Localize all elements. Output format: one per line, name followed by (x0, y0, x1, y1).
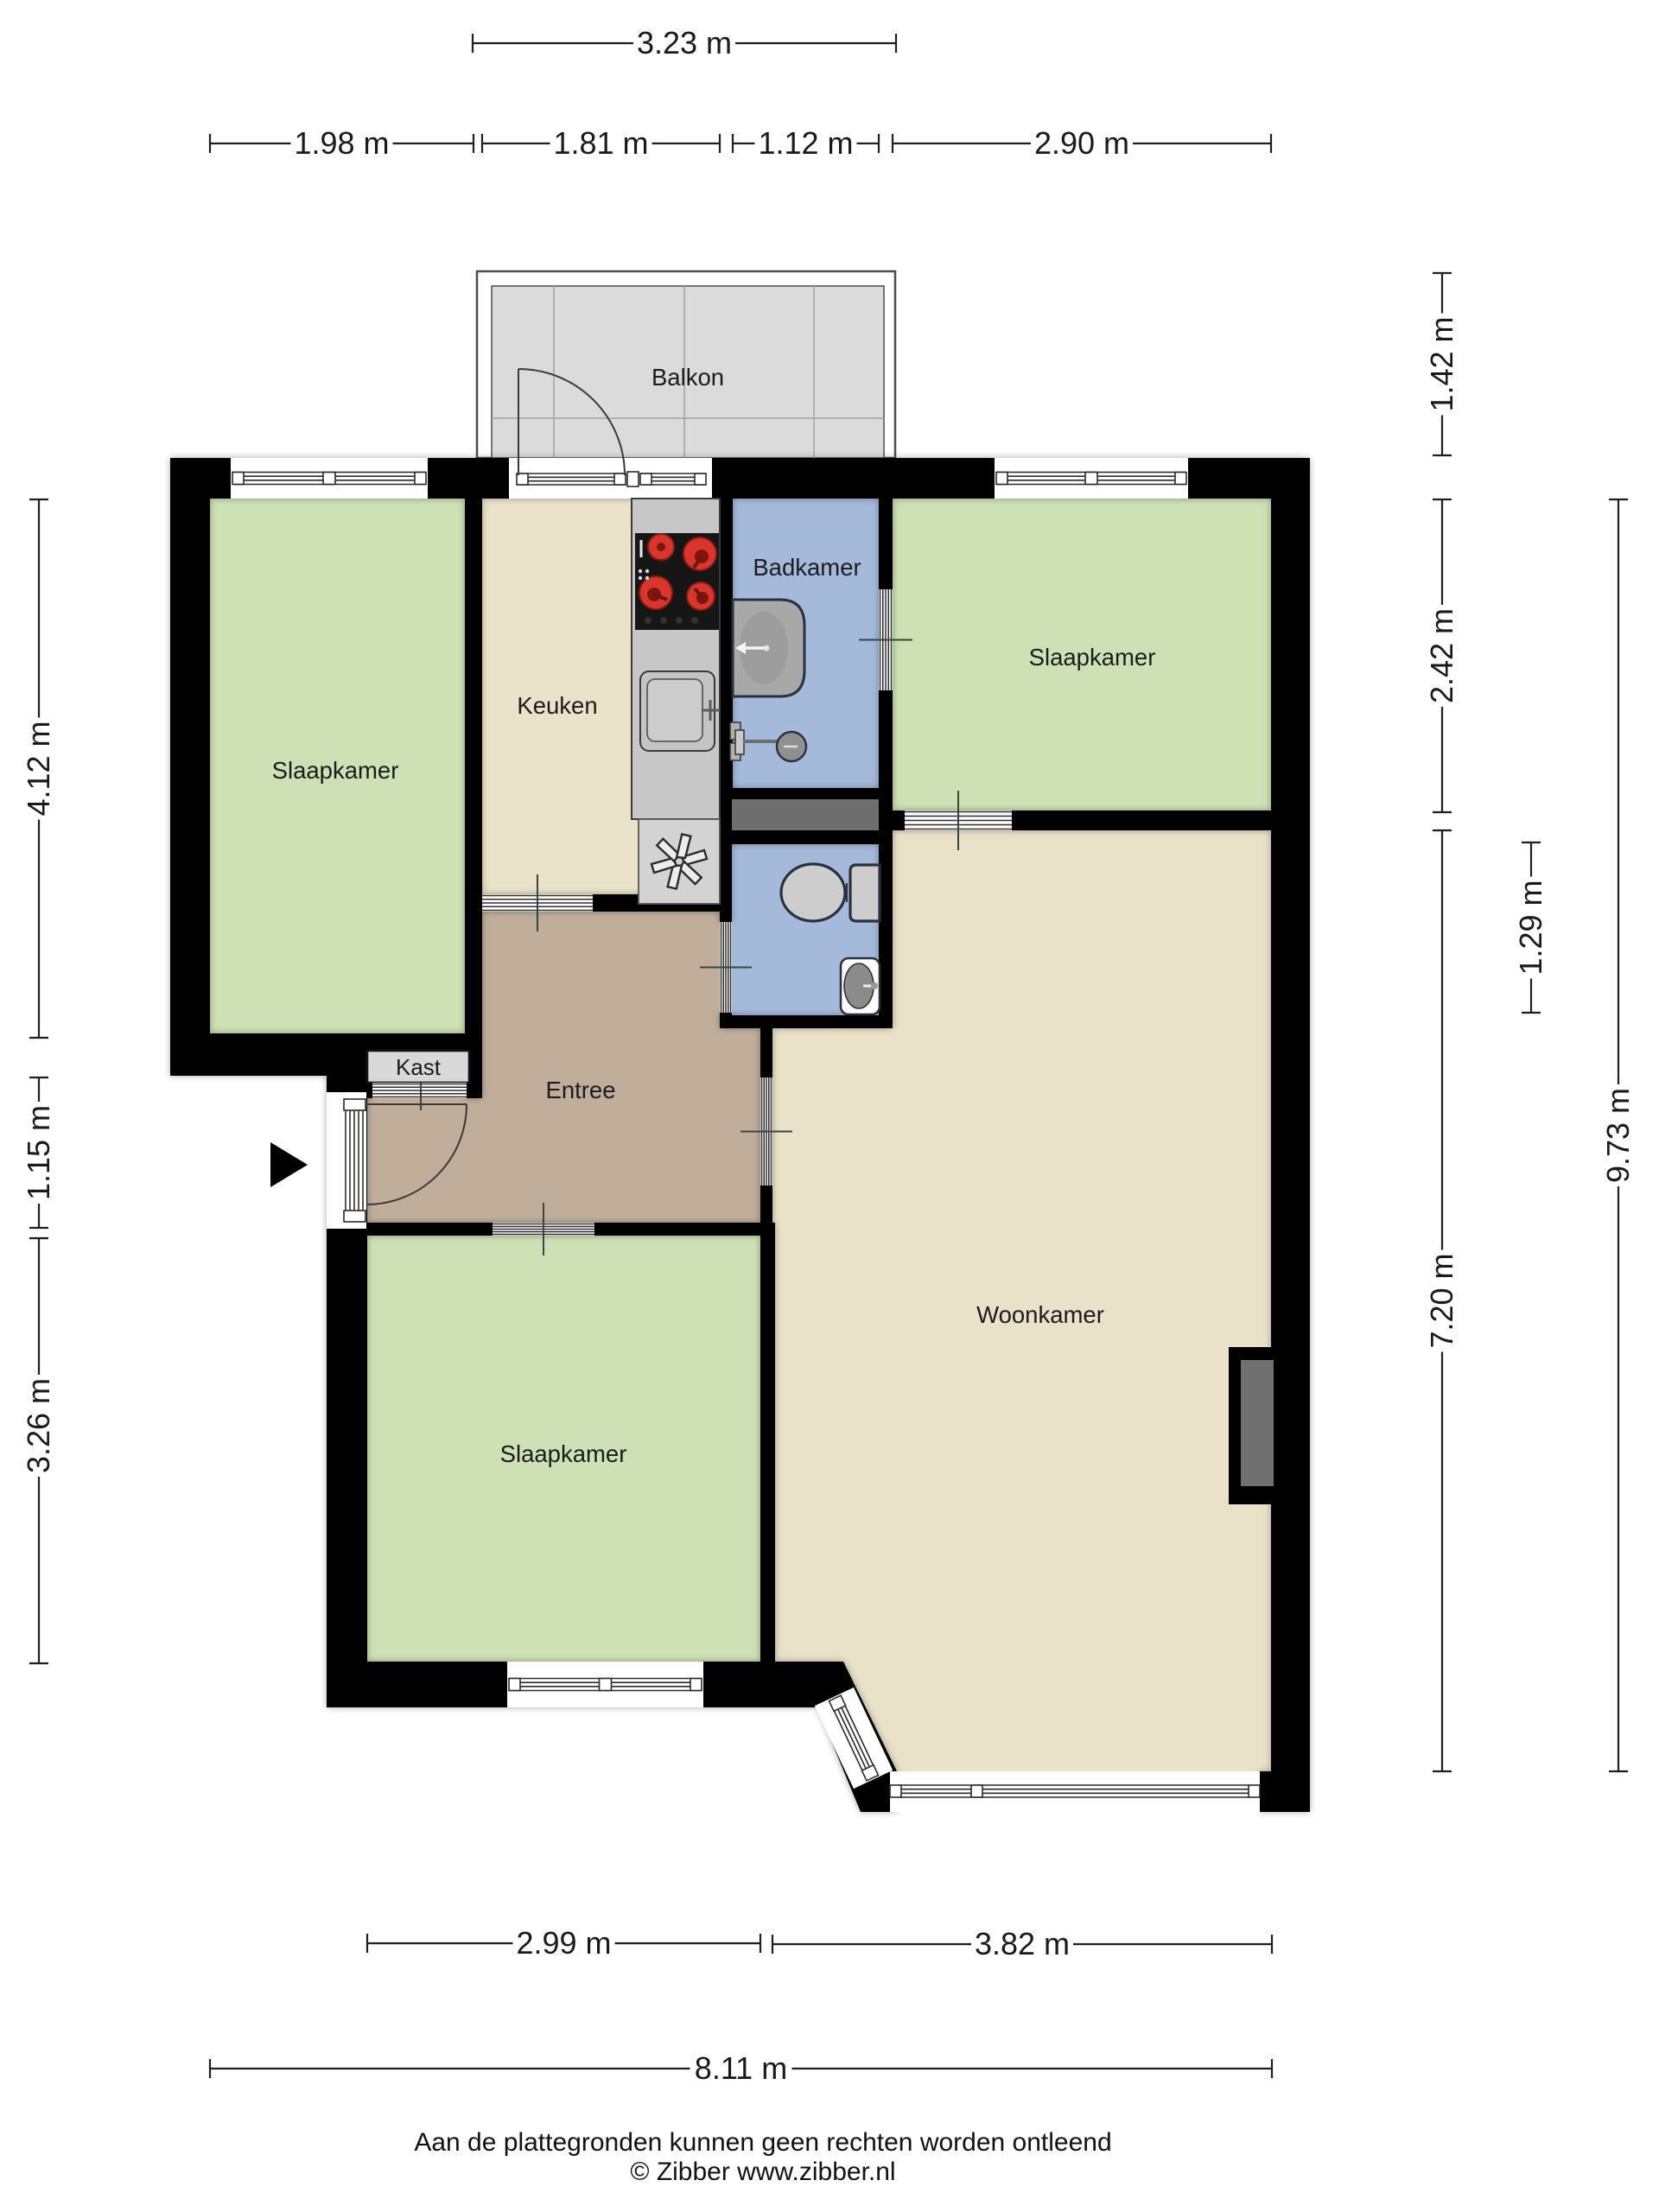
svg-text:3.26 m: 3.26 m (21, 1378, 56, 1473)
svg-text:Slaapkamer: Slaapkamer (272, 757, 399, 784)
svg-text:Badkamer: Badkamer (753, 554, 861, 581)
svg-text:Slaapkamer: Slaapkamer (1029, 644, 1156, 671)
svg-text:1.42 m: 1.42 m (1424, 316, 1459, 411)
svg-text:Kast: Kast (396, 1054, 442, 1080)
svg-text:Aan de plattegronden kunnen ge: Aan de plattegronden kunnen geen rechten… (414, 2128, 1111, 2157)
svg-text:Slaapkamer: Slaapkamer (500, 1440, 627, 1467)
svg-text:2.42 m: 2.42 m (1424, 608, 1459, 703)
svg-text:Entree: Entree (545, 1077, 615, 1103)
svg-text:8.11 m: 8.11 m (695, 2050, 787, 2086)
svg-text:2.99 m: 2.99 m (516, 1925, 611, 1961)
svg-text:Woonkamer: Woonkamer (976, 1301, 1104, 1328)
svg-text:3.82 m: 3.82 m (975, 1926, 1070, 1961)
svg-text:1.98 m: 1.98 m (294, 125, 389, 161)
svg-text:3.23 m: 3.23 m (637, 25, 732, 60)
svg-text:4.12 m: 4.12 m (21, 721, 56, 816)
svg-text:Keuken: Keuken (517, 692, 597, 719)
svg-text:1.81 m: 1.81 m (553, 125, 648, 161)
svg-text:1.15 m: 1.15 m (21, 1105, 56, 1200)
svg-text:2.90 m: 2.90 m (1034, 125, 1129, 161)
svg-text:© Zibber www.zibber.nl: © Zibber www.zibber.nl (630, 2158, 895, 2186)
svg-text:Balkon: Balkon (652, 364, 724, 391)
svg-text:1.29 m: 1.29 m (1513, 880, 1548, 975)
svg-text:9.73 m: 9.73 m (1600, 1088, 1636, 1183)
svg-text:7.20 m: 7.20 m (1424, 1253, 1459, 1348)
svg-text:1.12 m: 1.12 m (758, 125, 853, 161)
